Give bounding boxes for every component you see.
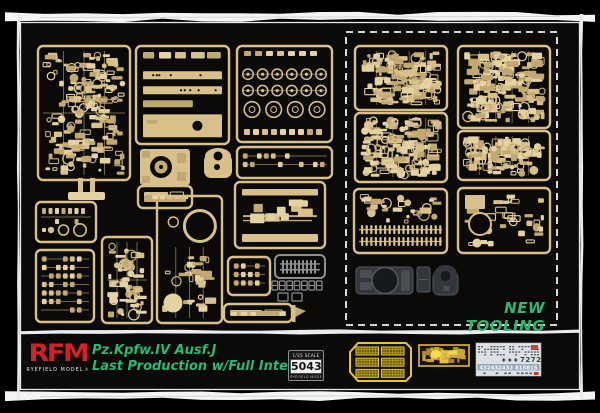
photo-etch-mesh-grille-fret <box>350 343 411 381</box>
brand-name-text: RYEFIELD MODEL <box>26 367 83 373</box>
decal-sheet: 7272432432432 815815 <box>476 343 541 376</box>
brand-logo: RFM RYEFIELD MODEL® <box>26 341 90 373</box>
part-turret-shell <box>204 148 232 178</box>
rfm-logo-text: RFM <box>22 341 94 366</box>
badge-kit-number: 5043 <box>290 359 322 374</box>
registered-mark: ® <box>85 367 90 372</box>
photo-etch-detail-fret <box>419 345 469 366</box>
decal-band-numbers: 432432432 815815 <box>479 365 537 371</box>
part-hull-top <box>140 149 190 185</box>
badge-scale-text: 1/35 SCALE <box>290 352 322 359</box>
scale-badge: 1/35 SCALE 5043 RYEFIELD MODEL <box>288 350 324 381</box>
frame-brush-right <box>580 14 584 399</box>
part-block <box>417 267 430 292</box>
decal-serial-number: 7272 <box>520 356 541 364</box>
part-turret-dark <box>433 265 458 295</box>
brand-subtitle: RYEFIELD MODEL® <box>26 367 90 373</box>
frame-brush-left <box>17 14 21 399</box>
part-hull-tub <box>356 267 413 294</box>
decal-red-marking <box>531 345 538 350</box>
kit-title: Pz.Kpfw.IV Ausf.J Last Production w/Full… <box>92 343 314 374</box>
kit-title-line2: Last Production w/Full Interior <box>92 359 314 374</box>
new-tooling-label: NEW TOOLING <box>425 299 545 335</box>
kit-title-line1: Pz.Kpfw.IV Ausf.J <box>92 343 314 358</box>
badge-bottom-text: RYEFIELD MODEL <box>290 374 322 379</box>
model-kit-contents-image: 7272432432432 815815 NEW TOOLING RFM RYE… <box>0 0 600 413</box>
